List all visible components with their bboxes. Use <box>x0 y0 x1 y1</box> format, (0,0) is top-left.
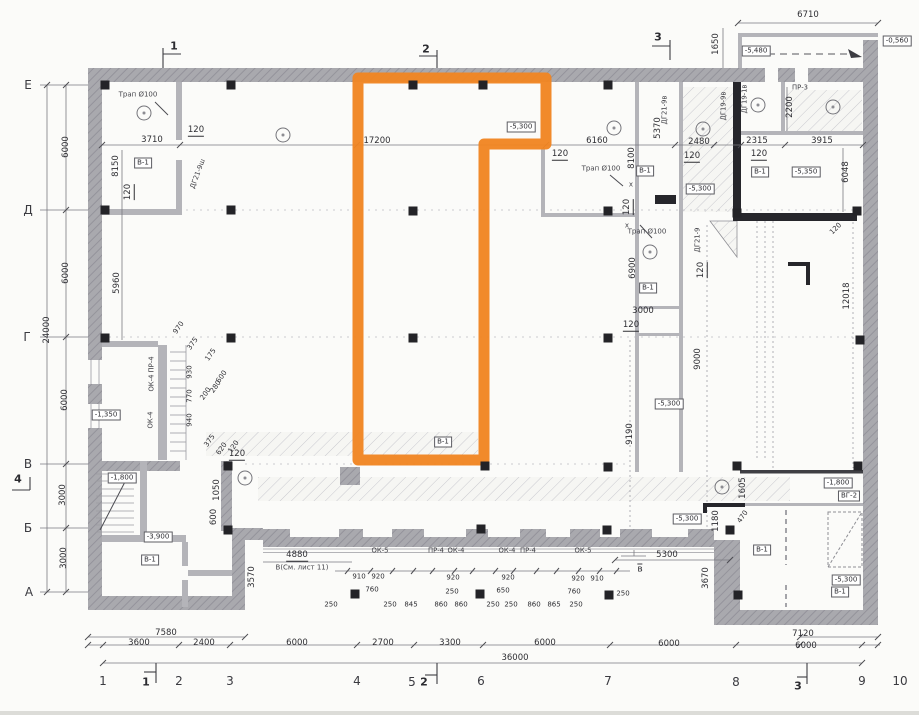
column-marker <box>733 209 742 218</box>
column-axis-label: 3 <box>226 675 234 687</box>
dim-label: 9000 <box>694 348 703 370</box>
dim-label: 8100 <box>628 147 637 169</box>
column-marker <box>409 81 418 90</box>
dim-label: 650 <box>496 588 509 595</box>
room-number-circle <box>751 98 766 113</box>
dim-label: 1180 <box>712 510 721 532</box>
dim-label: 3000 <box>60 547 69 569</box>
level-badge: -1,800 <box>824 478 853 489</box>
dim-label: 120 <box>751 150 767 161</box>
dim-label: 4880 <box>286 551 308 562</box>
column-marker <box>733 462 742 471</box>
room-number-circle <box>715 480 730 495</box>
column-axis-label: 10 <box>892 675 907 687</box>
room-badge: В-1 <box>141 555 159 566</box>
room-badge: В-1 <box>639 283 657 294</box>
dim-label: 3600 <box>128 639 150 648</box>
opening-tag: ПР-3 <box>792 85 808 92</box>
column-axis-label: 1 <box>99 675 107 687</box>
dim-label: 760 <box>567 589 580 596</box>
column-marker <box>604 81 613 90</box>
colonnade-wall <box>263 529 714 553</box>
dim-label: 860 <box>527 602 540 609</box>
row-axis-label: А <box>25 586 33 598</box>
column-marker <box>227 334 236 343</box>
column-marker <box>603 526 612 535</box>
level-badge: -1,350 <box>92 410 121 421</box>
column-marker <box>409 207 418 216</box>
dim-label: 940 <box>187 413 194 426</box>
dim-label: 930 <box>187 365 194 378</box>
dim-label: 6710 <box>797 11 819 20</box>
dim-label: 865 <box>547 602 560 609</box>
dim-label: 910 <box>590 576 603 583</box>
column-marker <box>604 207 613 216</box>
column-marker <box>409 334 418 343</box>
column-marker <box>605 591 614 600</box>
note-label: В(См. лист 11) <box>276 565 329 572</box>
level-badge: -0,560 <box>883 36 912 47</box>
note-label: Трап Ø100 <box>119 92 158 99</box>
room-badge: В-1 <box>753 545 771 556</box>
dim-label: 250 <box>486 602 499 609</box>
column-axis-label: 4 <box>353 675 361 687</box>
column-axis-label: 2 <box>175 675 183 687</box>
dim-label: 120 <box>697 262 708 278</box>
dim-label: 6000 <box>286 639 308 648</box>
dim-label: 7580 <box>155 629 177 638</box>
room-badge: В-1 <box>134 158 152 169</box>
dim-label: 8150 <box>112 155 121 177</box>
level-badge: -5,300 <box>507 122 536 133</box>
dim-label: 5300 <box>656 551 678 560</box>
column-marker <box>726 526 735 535</box>
room-badge: ВГ-2 <box>838 491 860 502</box>
dim-label: 2315 <box>746 137 768 146</box>
dim-label: 770 <box>187 389 194 402</box>
dim-label: 860 <box>454 602 467 609</box>
column-marker <box>854 462 863 471</box>
dim-label: 120 <box>124 184 135 200</box>
dim-label: 2200 <box>786 96 795 118</box>
opening-tag: ДГ21-9в <box>662 96 669 125</box>
column-marker <box>227 81 236 90</box>
room-badge: В-1 <box>751 167 769 178</box>
opening-tag: ПР-4 <box>520 548 536 555</box>
section-marker: 3 <box>794 681 802 692</box>
dim-label: 120 <box>188 126 204 137</box>
dim-label: 2700 <box>372 639 394 648</box>
dim-label: 120 <box>684 152 700 163</box>
room-number-circle <box>643 245 658 260</box>
row-axis-label: Е <box>24 79 32 91</box>
column-marker <box>224 462 233 471</box>
column-marker <box>224 526 233 535</box>
column-axis-label: 7 <box>604 675 612 687</box>
dim-label: 120 <box>623 199 634 215</box>
level-badge: -1,800 <box>108 473 137 484</box>
dim-label: 3710 <box>141 136 163 145</box>
room-number-circle <box>238 471 253 486</box>
column-marker <box>101 81 110 90</box>
room-badge: В-1 <box>636 166 654 177</box>
dim-label: 7120 <box>792 630 814 639</box>
ramp-arrow <box>768 49 862 58</box>
column-axis-label: 6 <box>477 675 485 687</box>
dim-label: 5960 <box>113 272 122 294</box>
scan-edge-shadow <box>0 711 919 715</box>
dim-label: 6900 <box>629 257 638 279</box>
row-axis-label: В <box>24 458 32 470</box>
dim-label: 920 <box>371 574 384 581</box>
dim-label: 1650 <box>712 33 721 55</box>
dim-label: 250 <box>324 602 337 609</box>
column-marker <box>604 334 613 343</box>
dimension-lines <box>40 23 880 663</box>
dim-label: 24000 <box>43 316 52 343</box>
section-marker: 1 <box>142 677 150 688</box>
dim-label: 2480 <box>688 138 710 147</box>
column-axis-label: 9 <box>858 675 866 687</box>
level-badge: -3,900 <box>144 532 173 543</box>
dim-label: 6000 <box>534 639 556 648</box>
room-badge: В-1 <box>434 437 452 448</box>
room-number-circle <box>137 106 152 121</box>
opening-tag: ОК-4 <box>448 548 465 555</box>
column-marker <box>227 206 236 215</box>
dim-label: 3000 <box>632 307 654 316</box>
column-marker <box>101 206 110 215</box>
dim-label: 600 <box>210 509 219 525</box>
dim-label: 920 <box>571 576 584 583</box>
opening-tag: ОК-4 ПР-4 <box>149 356 156 391</box>
dim-label: 6160 <box>586 137 608 146</box>
note-label: х <box>629 182 633 189</box>
dim-label: 6000 <box>795 642 817 651</box>
column-marker <box>481 462 490 471</box>
column-marker <box>479 81 488 90</box>
note-label: Трап Ø100 <box>582 166 621 173</box>
row-axis-label: Г <box>23 331 30 343</box>
dim-label: 250 <box>445 589 458 596</box>
dim-label: 1050 <box>213 479 222 501</box>
column-marker <box>351 590 360 599</box>
room-badge: В-1 <box>831 587 849 598</box>
column-marker <box>853 207 862 216</box>
opening-tag: ОК-4 <box>148 412 155 429</box>
opening-tag: ДГ19-1в <box>742 85 749 114</box>
dim-label: 12018 <box>843 282 852 309</box>
dim-label: 860 <box>434 602 447 609</box>
dim-label: 3000 <box>59 484 68 506</box>
row-axis-label: Б <box>24 522 32 534</box>
dim-label: 910 <box>352 574 365 581</box>
dim-label: 845 <box>404 602 417 609</box>
dim-label: 17200 <box>363 137 390 146</box>
opening-tag: ОК-5 <box>372 548 389 555</box>
dim-label: 6048 <box>842 161 851 183</box>
dim-label: 1605 <box>739 477 748 499</box>
dim-label: 2400 <box>193 639 215 648</box>
level-badge: -5,300 <box>673 514 702 525</box>
note-label: х <box>625 223 629 230</box>
opening-tag: ОК-4 <box>499 548 516 555</box>
column-marker <box>604 463 613 472</box>
column-marker <box>476 590 485 599</box>
room-number-circle <box>696 122 711 137</box>
dim-label: 760 <box>365 587 378 594</box>
dim-label: 250 <box>569 602 582 609</box>
dim-label: 9190 <box>626 423 635 445</box>
column-marker <box>477 525 486 534</box>
room-number-circle <box>607 121 622 136</box>
dim-label: 6000 <box>62 136 71 158</box>
row-axis-label: Д <box>23 204 32 216</box>
dim-label: 3300 <box>439 639 461 648</box>
column-marker <box>734 591 743 600</box>
section-marker: 2 <box>420 677 428 688</box>
dim-label: 3915 <box>811 137 833 146</box>
dim-label: 250 <box>616 591 629 598</box>
floor-plan-page: ЕДГВБА123456789101234123в671037101720061… <box>0 0 919 715</box>
dim-label: 6000 <box>658 640 680 649</box>
column-marker <box>101 334 110 343</box>
dim-label: 36000 <box>501 654 528 663</box>
level-badge: -5,480 <box>742 46 771 57</box>
level-badge: -5,300 <box>686 184 715 195</box>
level-badge: -5,350 <box>792 167 821 178</box>
column-axis-label: 8 <box>732 676 740 688</box>
section-marker: 1 <box>170 41 178 52</box>
dim-label: 3670 <box>702 567 711 589</box>
dim-label: 120 <box>623 321 639 332</box>
dim-label: 920 <box>446 575 459 582</box>
level-badge: -5,300 <box>655 399 684 410</box>
dim-label: 250 <box>504 602 517 609</box>
dimension-ticks <box>44 20 881 666</box>
dim-label: 6000 <box>61 389 70 411</box>
opening-tag: ДГ19-9в <box>721 92 728 121</box>
section-marker: 4 <box>14 474 22 485</box>
section-marker: 3 <box>654 32 662 43</box>
level-badge: -5,300 <box>832 575 861 586</box>
view-marker: в <box>637 564 642 575</box>
room-number-circle <box>826 100 841 115</box>
opening-tag: ОК-5 <box>575 548 592 555</box>
opening-tag: ПР-4 <box>428 548 444 555</box>
dim-label: 120 <box>552 150 568 161</box>
dim-label: 250 <box>383 602 396 609</box>
column-axis-label: 5 <box>408 676 416 688</box>
note-label: Трап Ø100 <box>628 229 667 236</box>
opening-tag: ДГ21-9 <box>695 228 702 253</box>
room-number-circle <box>276 128 291 143</box>
dim-label: 3570 <box>248 566 257 588</box>
dim-label: 6000 <box>62 262 71 284</box>
section-marker: 2 <box>422 44 430 55</box>
dim-label: 920 <box>501 575 514 582</box>
column-marker <box>856 336 865 345</box>
